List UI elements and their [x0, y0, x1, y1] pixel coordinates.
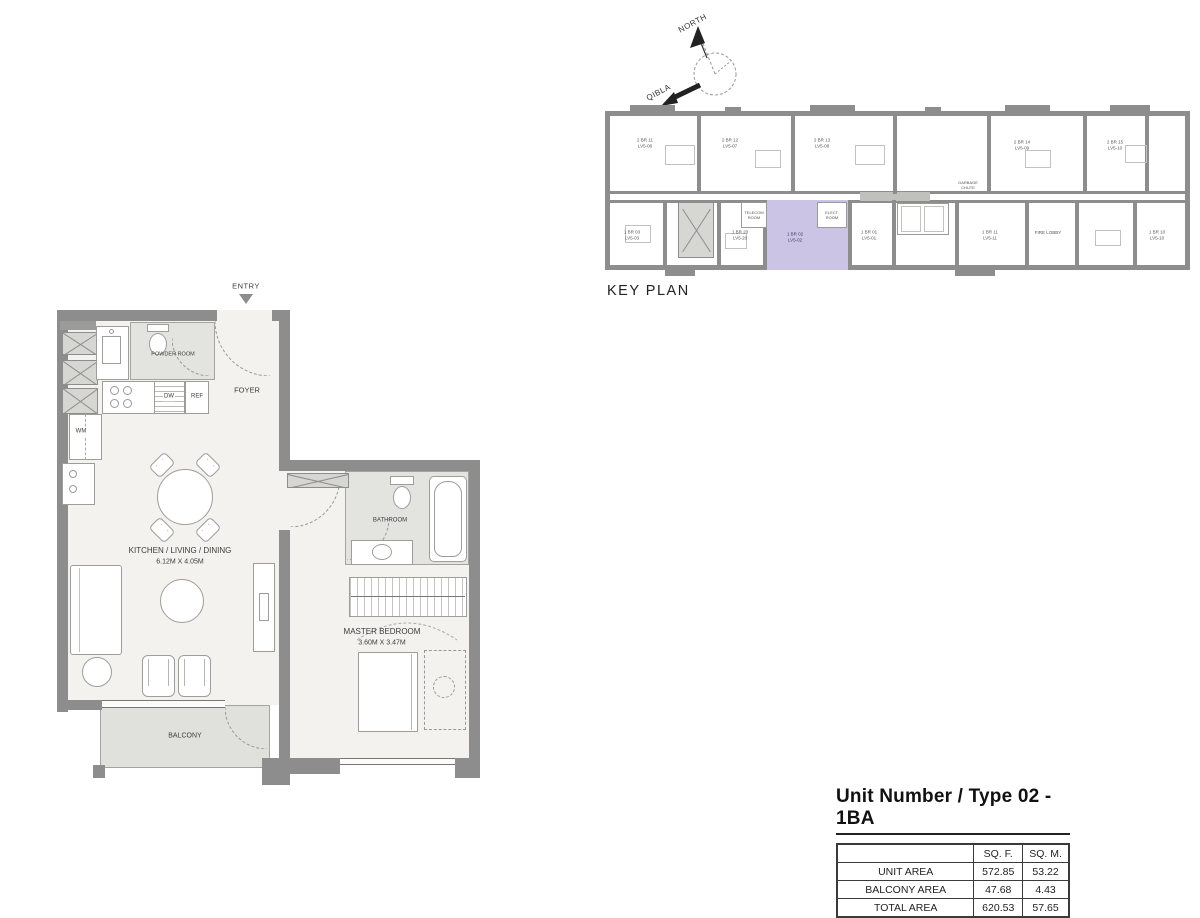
kitchen-sink [102, 336, 121, 364]
wall [1005, 105, 1050, 113]
keyplan-unit-label: 1 BR 20 LV5-20 [732, 229, 748, 240]
unit-detail [855, 145, 885, 165]
unit-detail [1025, 150, 1051, 168]
entry-door-arc [215, 321, 270, 376]
row-sqm: 57.65 [1023, 899, 1069, 918]
row-sqf: 620.53 [974, 899, 1023, 918]
hob-burner [110, 399, 119, 408]
wall [791, 111, 795, 194]
wall [925, 107, 941, 115]
wall [955, 268, 995, 276]
shaft-box [62, 360, 98, 385]
keyplan-room-label: ELECT. ROOM [825, 210, 839, 220]
unit-detail [1125, 145, 1147, 163]
shaft-box [62, 388, 98, 414]
hob-burner [110, 386, 119, 395]
compass-rose-icon [645, 12, 765, 112]
keyplan-room-label: TELECOM ROOM [744, 210, 763, 220]
wall [57, 310, 217, 321]
wall [848, 200, 852, 265]
key-plan: 2 BR 11 LV5-06 2 BR 12 LV5-07 2 BR 13 LV… [605, 105, 1190, 277]
header-sqm: SQ. M. [1023, 844, 1069, 863]
kitchen-living-dining-label: KITCHEN / LIVING / DINING [129, 546, 232, 556]
entry-arrow-icon [239, 294, 253, 304]
tv [259, 593, 269, 621]
toilet-tank [390, 476, 414, 485]
header-sqf: SQ. F. [974, 844, 1023, 863]
kitchen-living-dining-dimensions: 6.12M X 4.05M [156, 559, 203, 568]
row-sqf: 572.85 [974, 863, 1023, 881]
sofa [70, 565, 122, 655]
wall [279, 310, 290, 471]
row-label: TOTAL AREA [837, 899, 974, 918]
dining-table [157, 469, 213, 525]
compass: NORTH QIBLA [645, 12, 765, 112]
keyplan-room-label: GARBAGE CHUTE [958, 180, 978, 190]
keyplan-unit-label: 1 BR 11 LV5-11 [982, 229, 998, 240]
bed [358, 652, 418, 732]
wall [810, 105, 855, 113]
master-bedroom-label: MASTER BEDROOM [344, 627, 421, 637]
water-heater [62, 463, 95, 505]
bathtub-basin [434, 481, 462, 557]
faucet [109, 329, 114, 334]
toilet-bowl [393, 486, 411, 509]
table-row: BALCONY AREA 47.68 4.43 [837, 881, 1069, 899]
keyplan-unit-label-highlighted: 1 BR 02 LV5-02 [787, 231, 803, 242]
dishwasher-label: DW [163, 393, 175, 401]
wall [1083, 111, 1087, 194]
floor-plan: ENTRY [57, 280, 483, 792]
wall [1075, 200, 1079, 265]
stair-core [678, 202, 714, 258]
keyplan-unit-label: 2 BR 12 LV5-07 [722, 137, 738, 148]
table-row: UNIT AREA 572.85 53.22 [837, 863, 1069, 881]
area-table: SQ. F. SQ. M. UNIT AREA 572.85 53.22 BAL… [836, 843, 1070, 918]
wall [1110, 105, 1150, 113]
armchair [178, 655, 211, 697]
unit-detail [665, 145, 695, 165]
unit-detail [755, 150, 781, 168]
title-rule [836, 833, 1070, 835]
wall [717, 200, 721, 265]
wall [665, 268, 695, 276]
powder-room-label: POWDER ROOM [151, 352, 194, 359]
wardrobe [349, 577, 467, 617]
armchair [142, 655, 175, 697]
wall [469, 460, 480, 765]
sofa-back-line [79, 568, 80, 652]
refrigerator-label: REF [191, 393, 203, 401]
key-plan-title: KEY PLAN [607, 283, 690, 299]
wall [987, 111, 991, 194]
living-window [102, 700, 225, 708]
shaft-tag [60, 321, 96, 330]
balcony-label: BALCONY [168, 733, 201, 742]
elevator-car [901, 206, 921, 232]
wall [725, 107, 741, 115]
linen-closet [287, 473, 349, 488]
side-table [82, 657, 112, 687]
keyplan-unit-label: 1 BR 01 LV5-01 [861, 229, 877, 240]
hob-burner [123, 386, 132, 395]
wardrobe-rail [351, 596, 465, 597]
hob-burner [123, 399, 132, 408]
keyplan-unit-label: 1 BR 10 LV5-10 [1149, 229, 1165, 240]
wall [93, 765, 105, 778]
keyplan-unit-label: 2 BR 14 LV5-09 [1014, 139, 1030, 150]
elevator-car [924, 206, 944, 232]
wall [892, 200, 896, 265]
bed-headboard-line [411, 654, 412, 730]
area-summary: Unit Number / Type 02 - 1BA SQ. F. SQ. M… [836, 786, 1070, 918]
row-sqm: 4.43 [1023, 881, 1069, 899]
coffee-table [160, 579, 204, 623]
row-sqm: 53.22 [1023, 863, 1069, 881]
wall [279, 530, 290, 765]
bathroom-label: BATHROOM [373, 517, 407, 525]
row-label: UNIT AREA [837, 863, 974, 881]
bedroom-window [340, 758, 455, 765]
wall [893, 111, 897, 194]
entry-label: ENTRY [232, 281, 260, 290]
wall [262, 758, 290, 785]
wall [1133, 200, 1137, 265]
table-row: TOTAL AREA 620.53 57.65 [837, 899, 1069, 918]
water-heater-dial [69, 470, 77, 478]
wall [697, 111, 701, 194]
wall [605, 111, 1190, 116]
table-header-row: SQ. F. SQ. M. [837, 844, 1069, 863]
wall [68, 700, 102, 710]
shaft-box [62, 332, 98, 355]
balcony-door-arc [225, 707, 267, 749]
unit-detail [1095, 230, 1121, 246]
keyplan-unit-label: 2 BR 15 LV5-10 [1107, 139, 1123, 150]
header-blank [837, 844, 974, 863]
toilet-tank [147, 324, 169, 332]
keyplan-unit-label: FIRE LOBBY [1035, 230, 1062, 236]
row-sqf: 47.68 [974, 881, 1023, 899]
wall [279, 460, 480, 471]
washing-machine-label: WM [75, 428, 88, 436]
keyplan-unit-label: 1 BR 03 LV5-03 [624, 229, 640, 240]
bathroom-sink [372, 544, 392, 560]
wall [1025, 200, 1029, 265]
keyplan-unit-label: 2 BR 11 LV5-06 [637, 137, 653, 148]
wall [955, 200, 959, 265]
wall [290, 758, 340, 774]
unit-type-title: Unit Number / Type 02 - 1BA [836, 786, 1070, 830]
water-heater-dial [69, 485, 77, 493]
wall [630, 105, 675, 113]
desk-chair [433, 676, 455, 698]
keyplan-unit-label: 2 BR 13 LV5-08 [814, 137, 830, 148]
master-bedroom-dimensions: 3.60M X 3.47M [358, 640, 405, 649]
row-label: BALCONY AREA [837, 881, 974, 899]
wall [455, 758, 480, 778]
closet-dash-line [85, 414, 86, 460]
wall [663, 200, 667, 265]
foyer-label: FOYER [234, 385, 260, 394]
